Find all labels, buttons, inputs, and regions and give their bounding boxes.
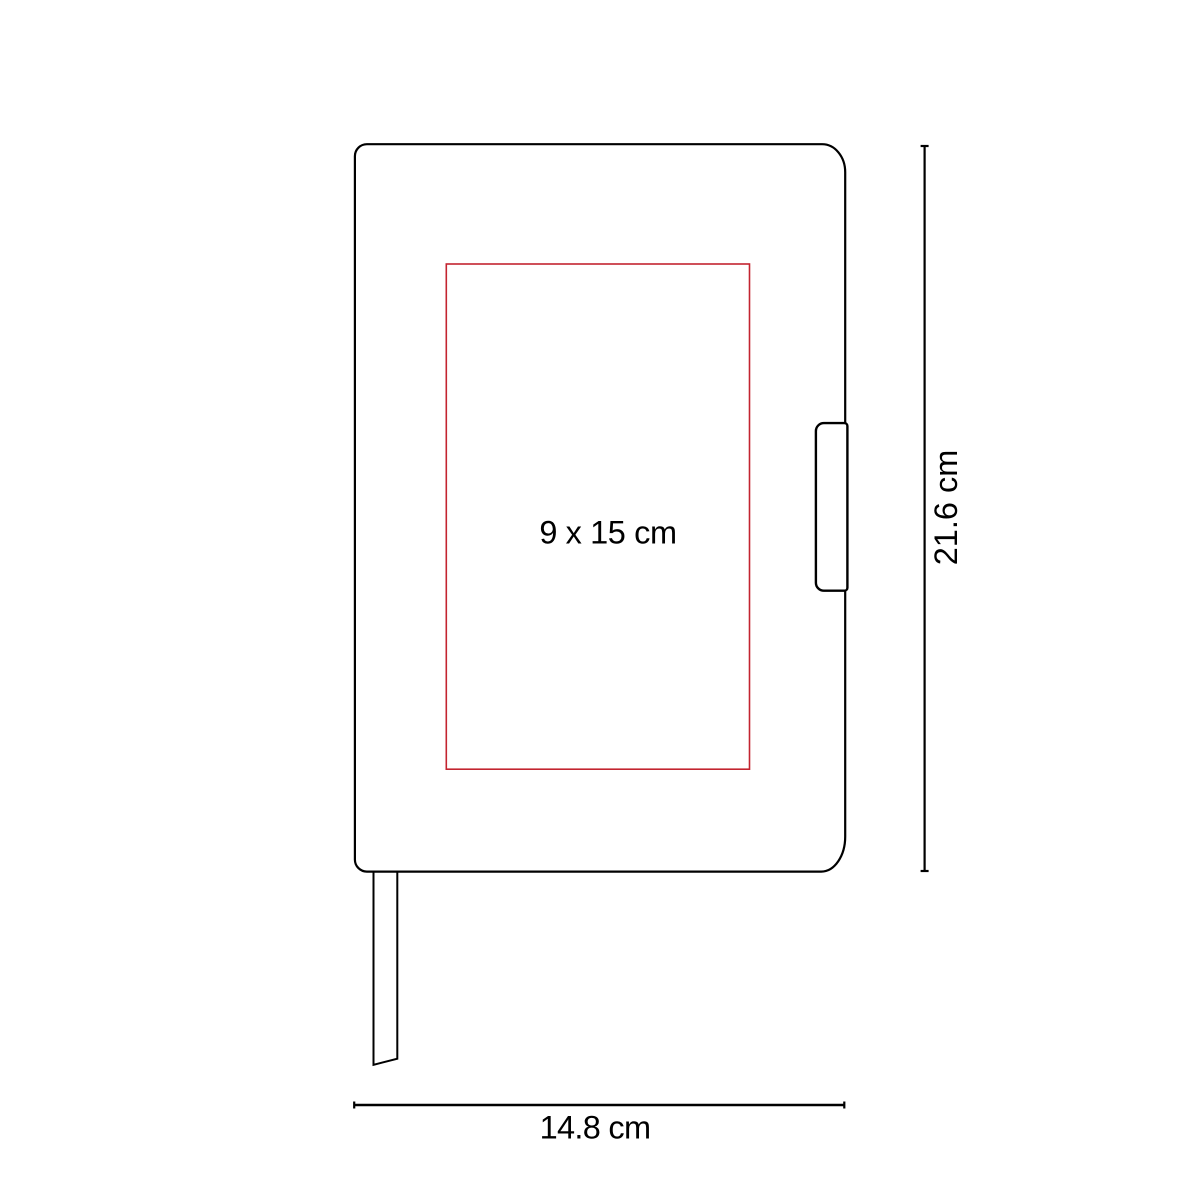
svg-text:9 x 15 cm: 9 x 15 cm xyxy=(539,515,676,551)
svg-text:21.6 cm: 21.6 cm xyxy=(928,450,964,566)
svg-text:14.8 cm: 14.8 cm xyxy=(540,1110,651,1146)
